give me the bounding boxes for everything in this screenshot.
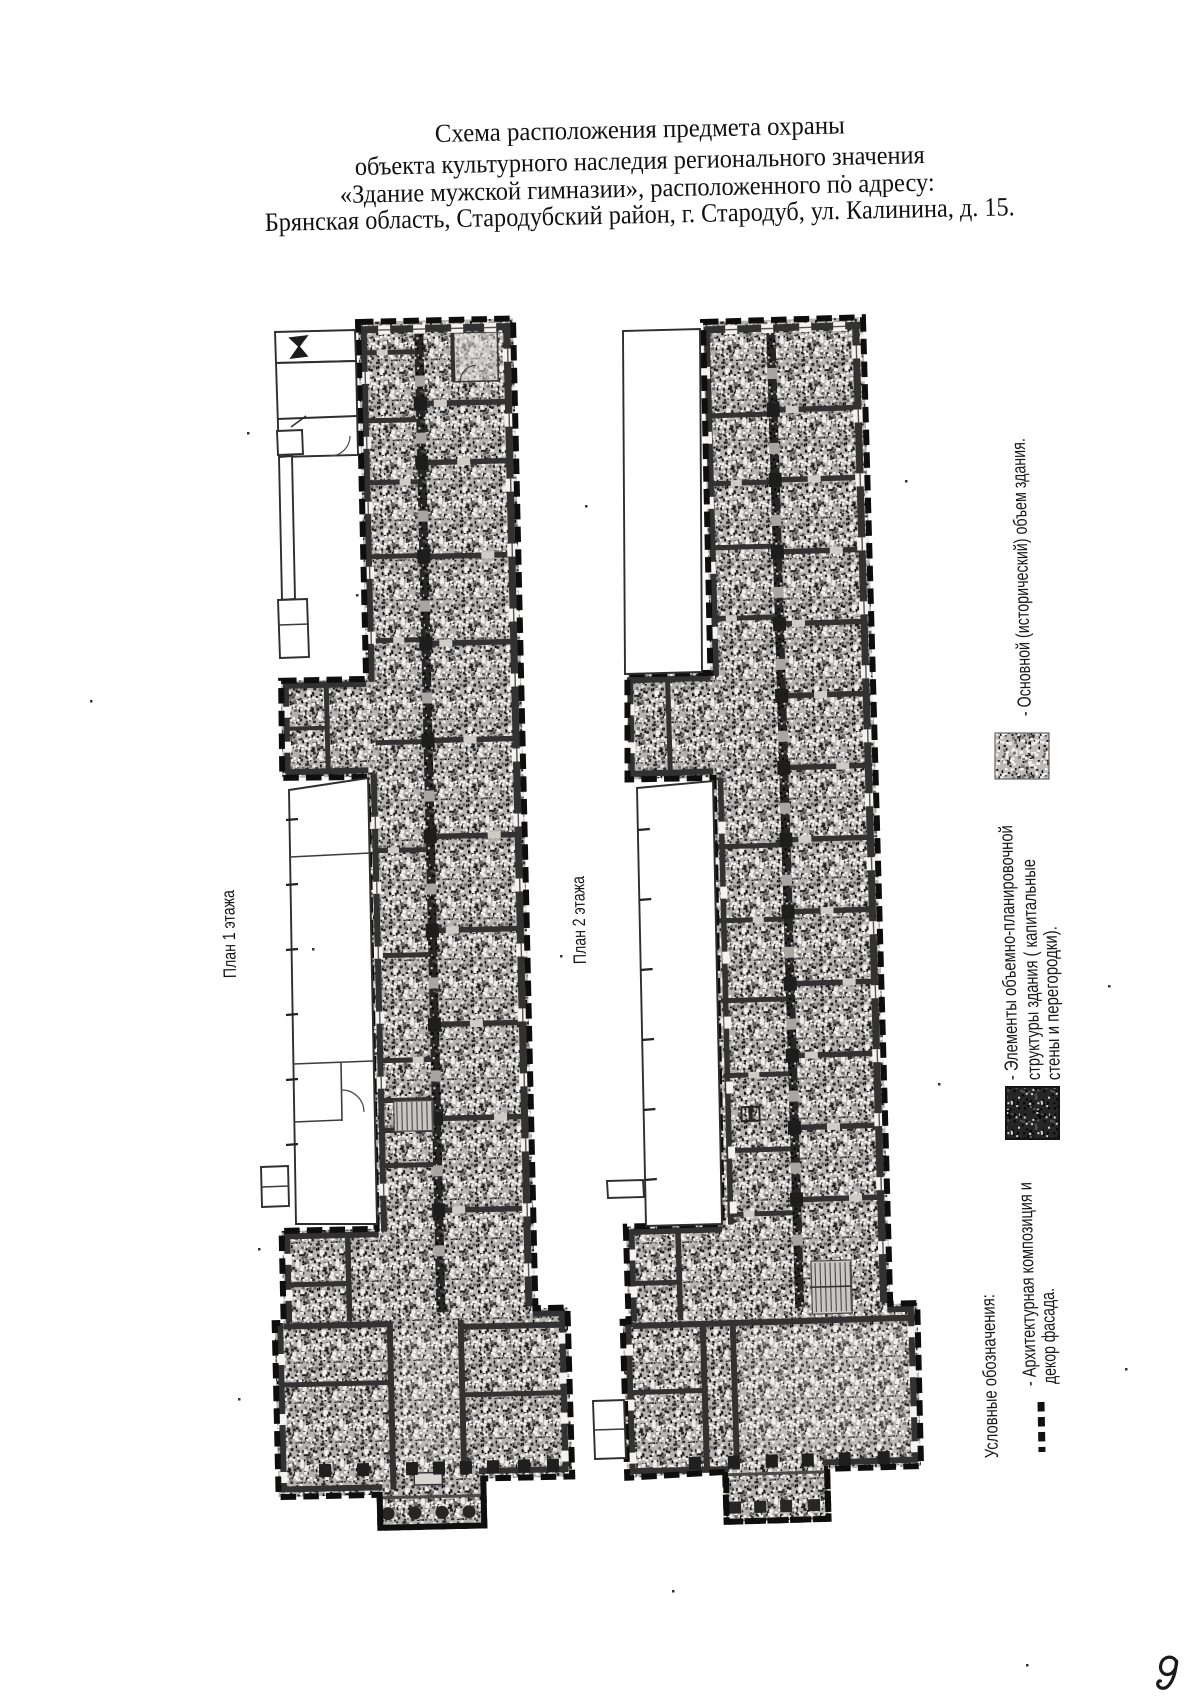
- svg-text:Условные обозначения:: Условные обозначения:: [978, 1294, 1003, 1458]
- svg-text:План 2 этажа: План 2 этажа: [568, 875, 590, 964]
- svg-text:План 1 этажа: План 1 этажа: [218, 889, 240, 978]
- svg-text:декор фасада.: декор фасада.: [1038, 1288, 1061, 1384]
- svg-text:стены и перегородки).: стены и перегородки).: [1041, 926, 1065, 1080]
